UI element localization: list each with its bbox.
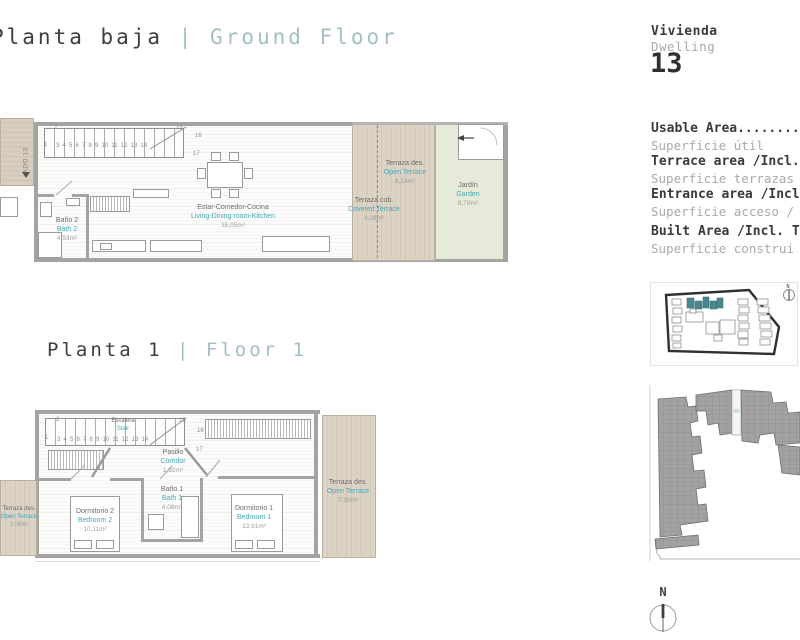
room-label-covered-terrace: Terraza cub. Covered Terrace 3,08m²	[348, 196, 400, 223]
wardrobe	[48, 450, 104, 470]
dining-table	[207, 162, 243, 188]
utility-box	[0, 197, 18, 217]
stair-number: 15	[176, 125, 183, 131]
room-name-en: Open Terrace	[1, 513, 37, 521]
room-name-en: Garden	[456, 190, 479, 199]
room-area: 13,91m²	[235, 522, 273, 531]
garden-fence	[435, 125, 436, 259]
wall	[36, 194, 54, 197]
ground-floor-title-es: Planta baja	[0, 25, 163, 49]
chair	[229, 189, 239, 198]
area-line-es: Superficie acceso /	[651, 204, 800, 221]
wall	[141, 539, 203, 542]
kitchen-counter	[150, 240, 202, 252]
room-label-open-terrace: Terraza des. Open Terrace 8,14m²	[384, 159, 426, 186]
area-line-en: Usable Area...........	[651, 121, 800, 138]
dwelling-label-es: Vivienda	[651, 24, 718, 39]
room-name-en: Bath 1	[161, 494, 183, 503]
building-strip-north-left	[696, 390, 732, 435]
understair-storage	[90, 196, 130, 212]
room-name-en: Stair	[111, 425, 134, 433]
room-name-es: Terraza cub.	[348, 196, 400, 205]
building-strip-west	[658, 397, 708, 537]
pillow	[96, 540, 114, 549]
room-name-es: Baño 1	[161, 485, 183, 494]
garden-gate	[458, 124, 504, 160]
dwelling-number: 13	[650, 48, 683, 79]
stair-number: 15	[179, 418, 186, 424]
shower	[181, 496, 199, 538]
area-line-es: Superficie construi	[651, 241, 800, 258]
wall	[34, 122, 354, 126]
chair	[211, 152, 221, 161]
stair-number-row: 3 4 5 6 7 8 9 10 11 12 13 14	[57, 437, 148, 443]
ground-floor-title: Planta baja | Ground Floor	[0, 25, 398, 49]
entry-arrow-icon	[22, 172, 30, 178]
building-strip-east	[778, 445, 800, 475]
site-boundary-line	[657, 547, 800, 559]
stair-number: 1	[44, 142, 47, 148]
stair-number: 2	[56, 417, 59, 423]
stair-number: 1	[45, 435, 48, 441]
room-label-garden: Jardín Garden 8,79m²	[456, 181, 479, 208]
stair-number: 16	[195, 133, 202, 139]
chair	[211, 189, 221, 198]
first-floor-title-es: Planta 1	[47, 339, 163, 361]
stair-number: 17	[196, 447, 203, 453]
entry-code-label: ADO 13	[23, 130, 30, 174]
room-name-es: Terraza des.	[1, 505, 37, 513]
washbasin	[66, 198, 80, 206]
room-name-es: Estar-Comedor-Cocina	[191, 203, 275, 212]
ground-floor-title-en: Ground Floor	[210, 25, 398, 49]
room-name-en: Living-Dining room-Kitchen	[191, 212, 275, 221]
highlighted-dwelling-block	[687, 297, 723, 309]
area-line-es: Superficie útil	[651, 138, 800, 155]
room-area: 3,08m²	[1, 521, 37, 529]
wall	[200, 478, 203, 542]
chair	[229, 152, 239, 161]
north-compass-icon	[643, 596, 687, 640]
room-label-terrace-left: Terraza des. Open Terrace 3,08m²	[1, 505, 37, 529]
room-name-es: Terraza des.	[384, 159, 426, 168]
chair	[244, 168, 253, 179]
room-name-es: Escalera	[111, 417, 134, 425]
room-area: 35,05m²	[191, 221, 275, 230]
site-plan	[646, 383, 800, 569]
unit-marker	[734, 409, 740, 413]
room-label-terrace-right: Terraza des. Open Terrace 7,30m²	[327, 478, 369, 505]
title-divider: |	[179, 25, 195, 49]
wall	[218, 476, 314, 479]
room-label-bath1: Baño 1 Bath 1 4,08m²	[161, 485, 183, 512]
area-line-en: Entrance area /Incl	[651, 187, 800, 204]
room-label-stair: Escalera Stair	[111, 417, 134, 433]
room-name-en: Bath 2	[56, 225, 78, 234]
stair-number-row: 3 4 5 6 7 8 9 10 11 12 13 14	[56, 143, 147, 149]
room-label-corridor: Pasillo Corridor 1,92m²	[160, 448, 185, 475]
room-name-en: Corridor	[160, 457, 185, 466]
room-name-en: Bedroom 2	[76, 516, 114, 525]
room-name-es: Terraza des.	[327, 478, 369, 487]
pillow	[74, 540, 92, 549]
area-line-es: Superficie terrazas	[651, 171, 800, 188]
chair	[197, 168, 206, 179]
ground-floor-plan	[0, 116, 512, 270]
wall	[86, 194, 89, 262]
wall	[35, 478, 71, 481]
room-area: 1,92m²	[160, 466, 185, 475]
room-label-living: Estar-Comedor-Cocina Living-Dining room-…	[191, 203, 275, 230]
room-name-en: Open Terrace	[327, 487, 369, 496]
building-strip-north-right	[741, 390, 800, 445]
title-divider-2: |	[177, 339, 191, 361]
stair-number: 2	[54, 125, 57, 131]
room-area: 4,53m²	[56, 234, 78, 243]
room-name-es: Pasillo	[160, 448, 185, 457]
room-name-es: Baño 2	[56, 216, 78, 225]
room-name-en: Bedroom 1	[235, 513, 273, 522]
kitchen-counter	[133, 189, 169, 198]
room-area: 8,79m²	[456, 199, 479, 208]
room-name-es: Dormitorio 1	[235, 504, 273, 513]
washbasin	[148, 514, 164, 530]
pillow	[257, 540, 275, 549]
plan-sheet: { "titles": { "ground": {"es": "Planta b…	[0, 0, 800, 640]
wall	[35, 554, 320, 558]
stair-number: 17	[193, 151, 200, 157]
room-area: 3,08m²	[348, 214, 400, 223]
room-name-es: Dormitorio 2	[76, 507, 114, 516]
room-area: 4,08m²	[161, 503, 183, 512]
kitchen-sink	[100, 243, 112, 250]
toilet	[40, 202, 52, 217]
room-label-bath2: Baño 2 Bath 2 4,53m²	[56, 216, 78, 243]
terrace-dashed-line	[377, 125, 378, 258]
room-name-en: Covered Terrace	[348, 205, 400, 214]
room-area: 7,30m²	[327, 496, 369, 505]
room-label-bedroom2: Dormitorio 2 Bedroom 2 10,11m²	[76, 507, 114, 534]
wall	[141, 478, 144, 542]
room-name-es: Jardín	[456, 181, 479, 190]
area-summary: Usable Area........... Superficie útil T…	[651, 121, 800, 257]
area-line-en: Built Area /Incl. T	[651, 224, 800, 241]
wardrobe	[205, 419, 311, 439]
stair-number: 16	[197, 428, 204, 434]
room-area: 8,14m²	[384, 177, 426, 186]
svg-text:N: N	[787, 284, 790, 290]
area-line-en: Terrace area /Incl.	[651, 154, 800, 171]
room-area: 10,11m²	[76, 525, 114, 534]
wall	[314, 410, 318, 558]
pillow	[235, 540, 253, 549]
key-plan: N	[650, 282, 798, 366]
room-label-bedroom1: Dormitorio 1 Bedroom 1 13,91m²	[235, 504, 273, 531]
wall	[35, 410, 320, 414]
sofa	[262, 236, 330, 252]
ledge-line	[35, 561, 320, 562]
room-name-en: Open Terrace	[384, 168, 426, 177]
wall	[110, 478, 144, 481]
open-terrace-area	[352, 122, 435, 261]
first-floor-title: Planta 1 | Floor 1	[47, 339, 307, 361]
first-floor-title-en: Floor 1	[206, 339, 307, 361]
